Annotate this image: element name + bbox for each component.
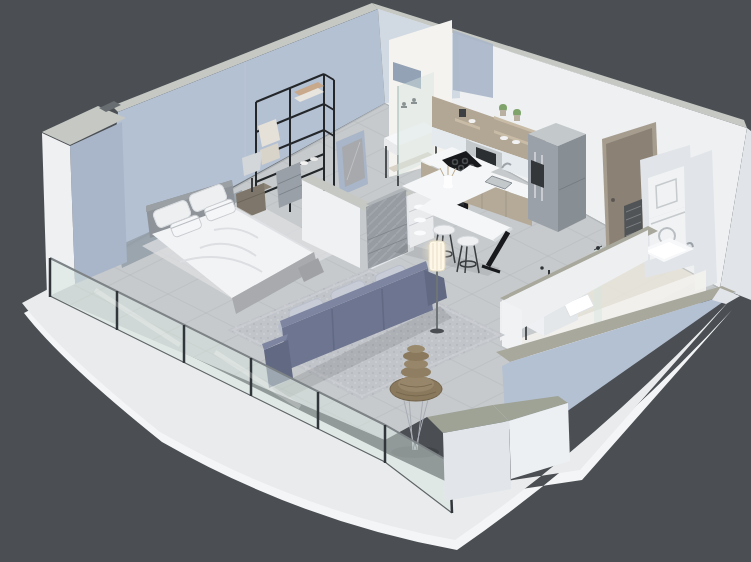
left-column-inner (70, 122, 127, 284)
utensil-pot (444, 176, 452, 185)
stool-seat (457, 236, 479, 246)
refrigerator (528, 123, 586, 232)
shoes (300, 161, 308, 165)
door-handle (611, 198, 615, 202)
floorplan-render (0, 0, 751, 562)
jar (459, 109, 466, 117)
stool-seat (433, 225, 455, 235)
isometric-scene (0, 0, 751, 562)
lamp-base (430, 329, 444, 334)
shoes (310, 157, 318, 161)
parapet-face (443, 421, 511, 501)
shower-head (596, 246, 600, 250)
